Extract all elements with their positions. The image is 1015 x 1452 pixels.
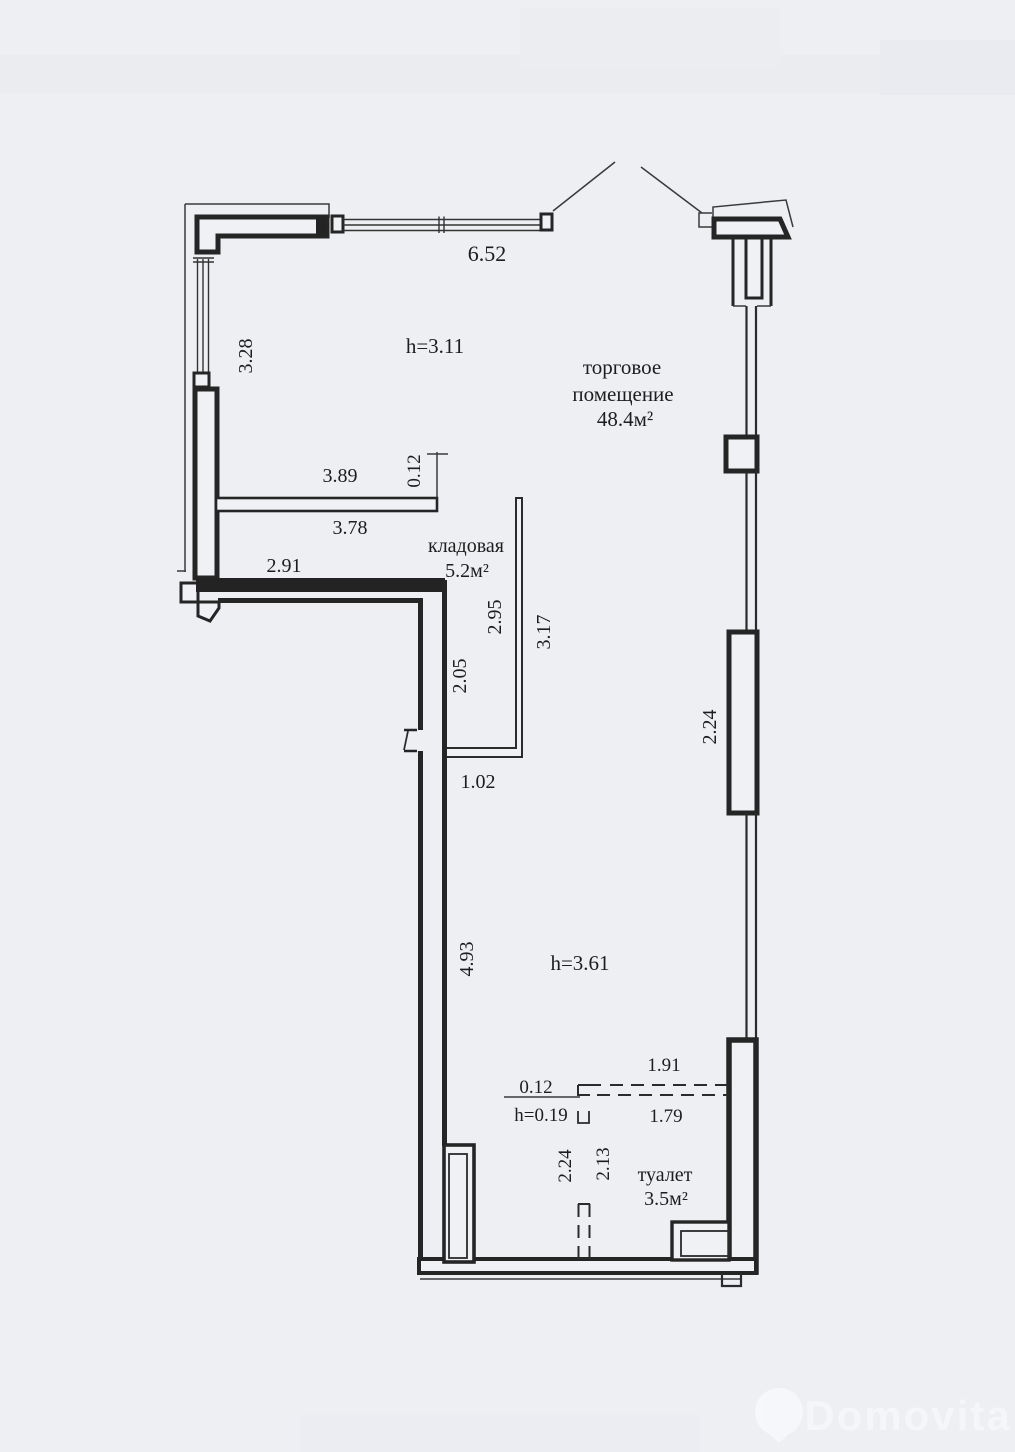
watermark-logo-icon <box>755 1388 803 1436</box>
dim-right-pilaster-label: 2.24 <box>699 710 721 745</box>
low-wall-v-dashed <box>579 1204 590 1259</box>
dim-storage-outer-label: 3.17 <box>533 615 555 650</box>
wall-291-solid <box>196 578 445 592</box>
exterior-walls-left <box>181 217 445 621</box>
toilet-room-name: туалет <box>638 1164 693 1186</box>
window-glazing-lines <box>343 220 541 231</box>
storage-room-name: кладовая <box>428 535 504 557</box>
dim-corridor-wall-label: 4.93 <box>456 942 478 977</box>
floor-plan-drawing: 6.52 3.28 h=3.11 торговое помещение 48.4… <box>0 0 1015 1452</box>
wall-top-left-L <box>197 217 327 252</box>
window-sill-bottom <box>194 373 209 387</box>
dim-top-window-label: 6.52 <box>468 241 507 266</box>
shaft-inner-slot <box>746 238 762 298</box>
dim-low-wall-thickness-label: 0.12 <box>519 1077 552 1098</box>
right-wall-segment-3 <box>747 813 757 1041</box>
dim-partition-top-label: 3.89 <box>323 465 358 487</box>
diagonal-right <box>641 167 702 213</box>
right-wall-segment-2 <box>747 471 757 632</box>
dim-low-wall-bottom-label: 1.79 <box>649 1106 682 1127</box>
boundary-left <box>177 204 186 572</box>
dim-wall-291-label: 2.91 <box>267 555 302 577</box>
scanned-floor-plan-page: { "page": { "background": "#edeff3", "li… <box>0 0 1015 1452</box>
entrance-diagonals <box>553 162 712 227</box>
dim-storage-west-label: 2.05 <box>449 659 471 694</box>
watermark-brand-text: Domovita <box>804 1392 1011 1439</box>
trade-room-name-line2: помещение <box>572 382 673 406</box>
trade-ceiling-height-lower: h=3.61 <box>550 951 609 975</box>
door-leaf <box>404 731 408 750</box>
low-wall-end-post <box>578 1085 590 1095</box>
trade-room-area: 48.4м² <box>597 407 653 431</box>
diagonal-left <box>553 162 615 211</box>
right-wall-segment-1 <box>747 306 757 437</box>
scan-noise-band <box>300 1415 700 1452</box>
window-jamb-right <box>541 214 552 230</box>
low-wall-height-label: h=0.19 <box>514 1105 567 1126</box>
toilet-pillar <box>729 1040 756 1272</box>
pier-square <box>181 583 198 602</box>
dim-storage-inner-label: 2.95 <box>484 600 506 635</box>
partition-378 <box>216 498 437 511</box>
low-wall-foot-bracket <box>578 1111 589 1123</box>
wall-end-chamfer <box>198 602 219 621</box>
dim-partition-bottom-label: 3.78 <box>333 517 368 539</box>
window-glazing-lines <box>198 259 209 373</box>
left-window-328 <box>193 258 214 387</box>
scan-noise-band <box>0 55 1015 93</box>
wall-left-pier <box>195 389 217 578</box>
plan-labels: 6.52 3.28 h=3.11 торговое помещение 48.4… <box>235 241 721 1210</box>
dim-storage-opening-label: 1.02 <box>461 771 496 793</box>
right-wall <box>713 200 793 1272</box>
storage-room-area: 5.2м² <box>445 560 489 582</box>
trade-room-name-line1: торговое <box>583 355 661 379</box>
scan-noise-band <box>880 40 1015 95</box>
watermark-logo-pin <box>765 1430 793 1443</box>
scan-noise-band <box>520 8 780 68</box>
toilet-room-area: 3.5м² <box>644 1188 688 1210</box>
pillar-cap <box>714 219 788 237</box>
top-window-652 <box>332 214 552 233</box>
right-pilaster-224 <box>729 632 757 813</box>
window-jamb-left <box>332 216 343 232</box>
dim-partition-thickness-label: 0.12 <box>404 454 425 487</box>
dim-toilet-inner-label: 2.13 <box>593 1147 614 1180</box>
dim-low-wall-top-label: 1.91 <box>647 1055 680 1076</box>
bottom-walls <box>419 1145 756 1286</box>
dim-012-top-line <box>427 452 448 497</box>
watermark: Domovita <box>755 1388 1012 1443</box>
jamb-bracket <box>699 213 712 227</box>
right-column <box>726 437 757 471</box>
dim-toilet-outer-label: 2.24 <box>555 1149 576 1183</box>
dim-left-window-label: 3.28 <box>235 339 257 374</box>
wall-top-left-end-cap <box>316 217 327 236</box>
trade-ceiling-height-upper: h=3.11 <box>406 334 464 358</box>
interior-partitions <box>216 498 522 1261</box>
